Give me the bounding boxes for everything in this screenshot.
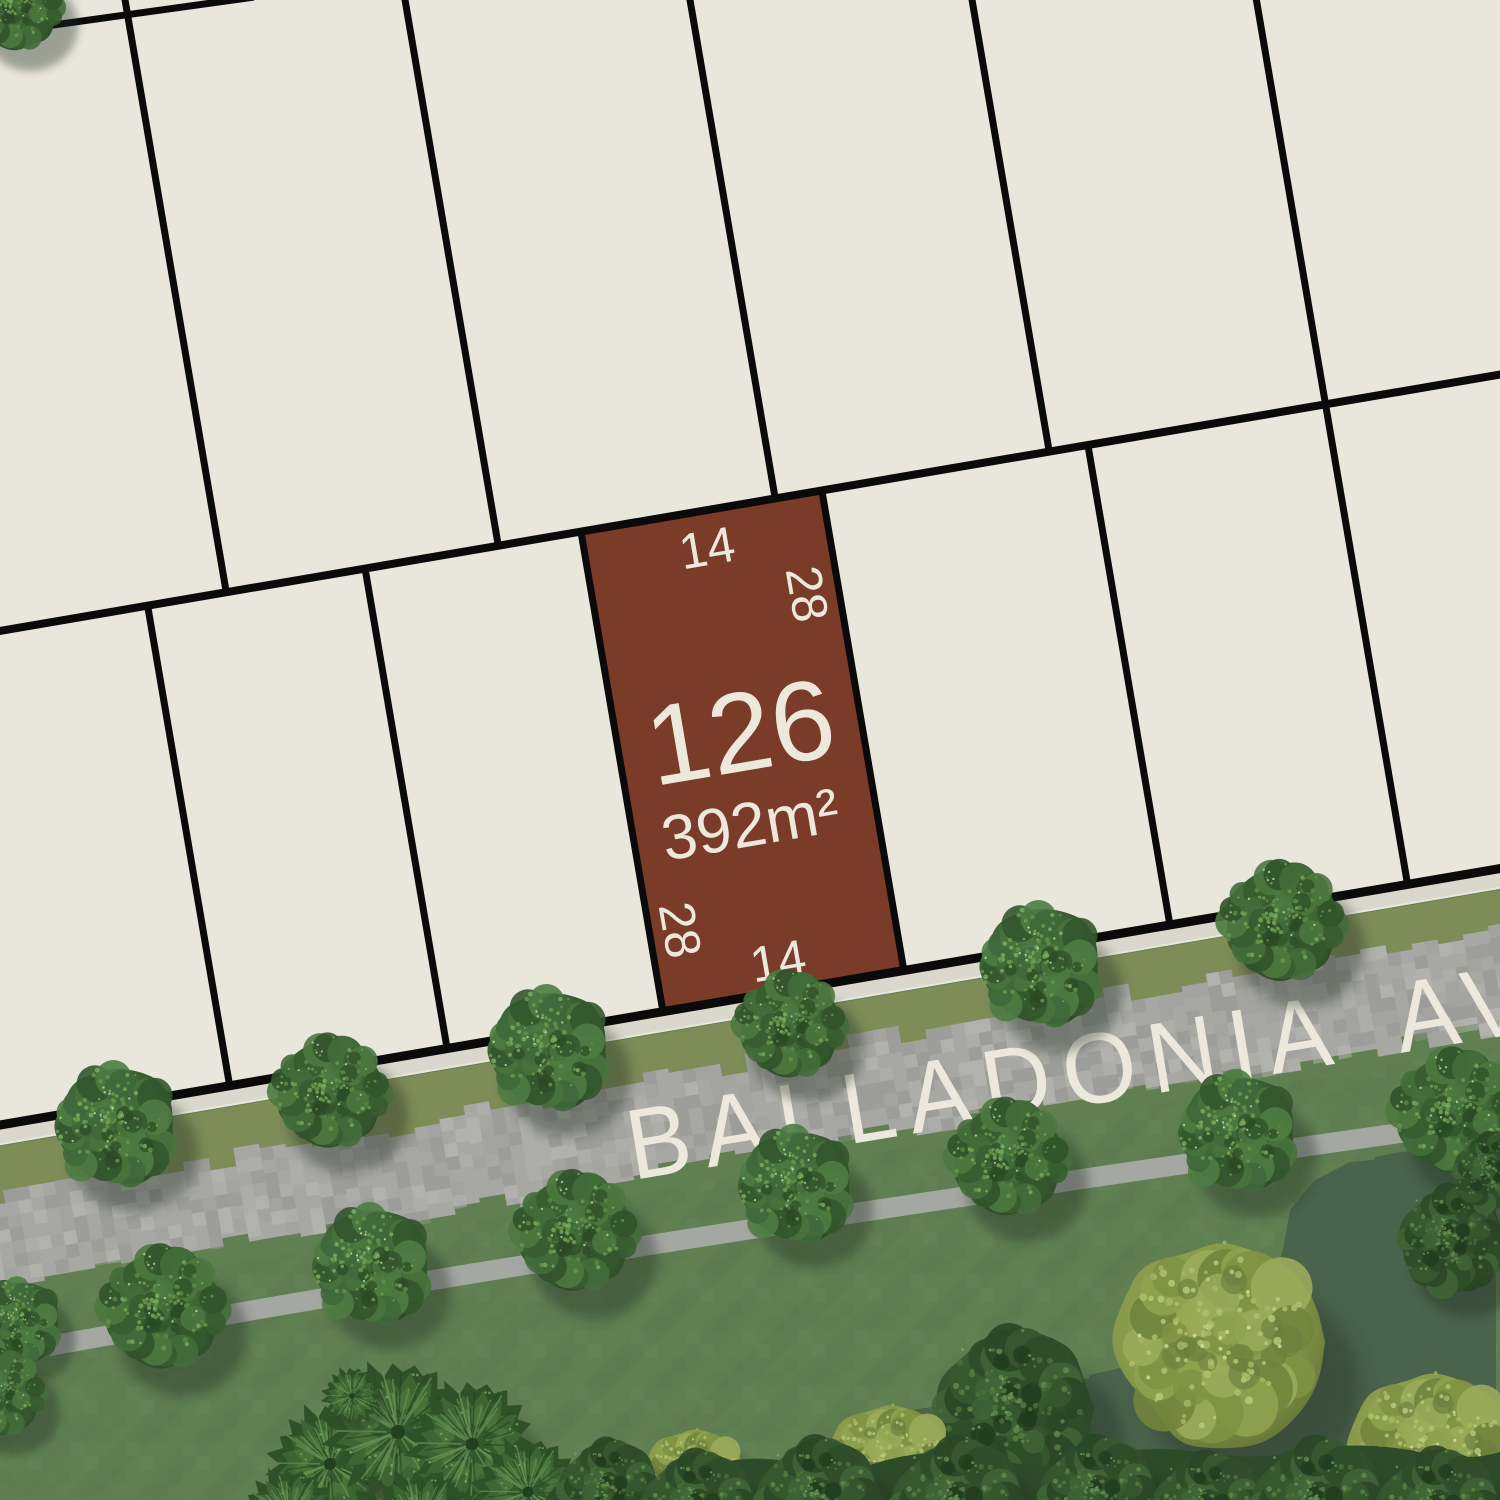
svg-text:28: 28 <box>775 562 840 626</box>
svg-text:14: 14 <box>675 516 739 581</box>
svg-text:28: 28 <box>648 898 713 962</box>
